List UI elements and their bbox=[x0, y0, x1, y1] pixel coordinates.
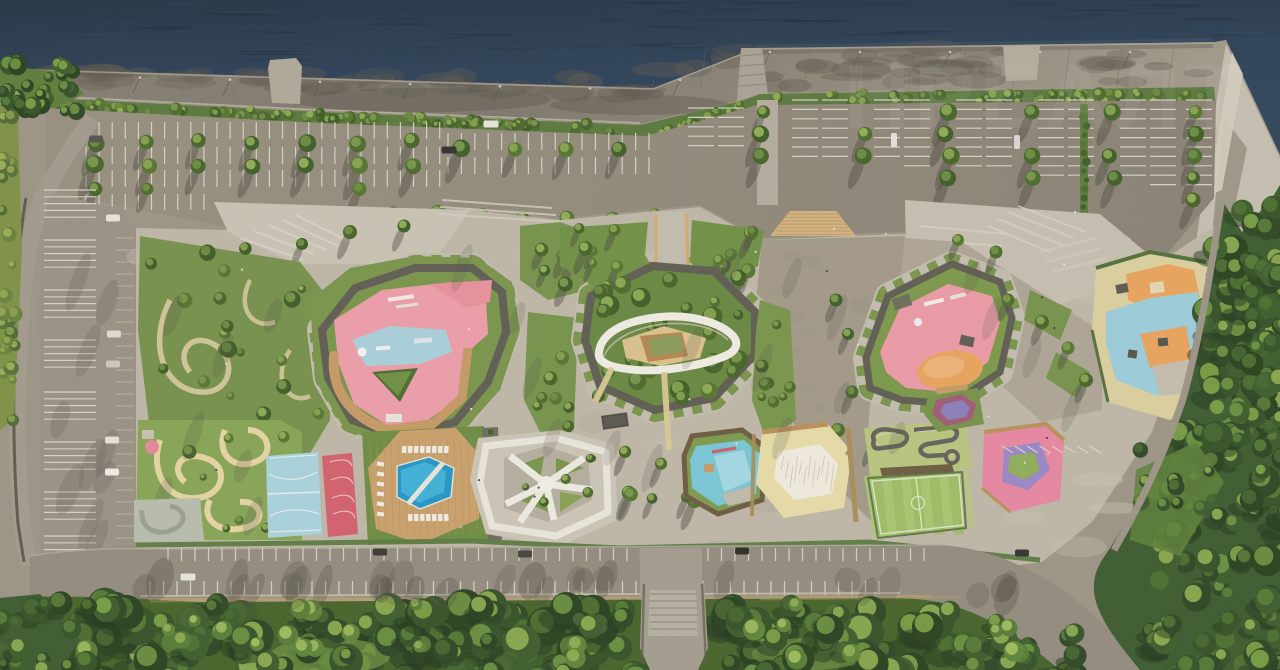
svg-text:НРЕАЛТ: НРЕАЛТ bbox=[844, 46, 1245, 148]
